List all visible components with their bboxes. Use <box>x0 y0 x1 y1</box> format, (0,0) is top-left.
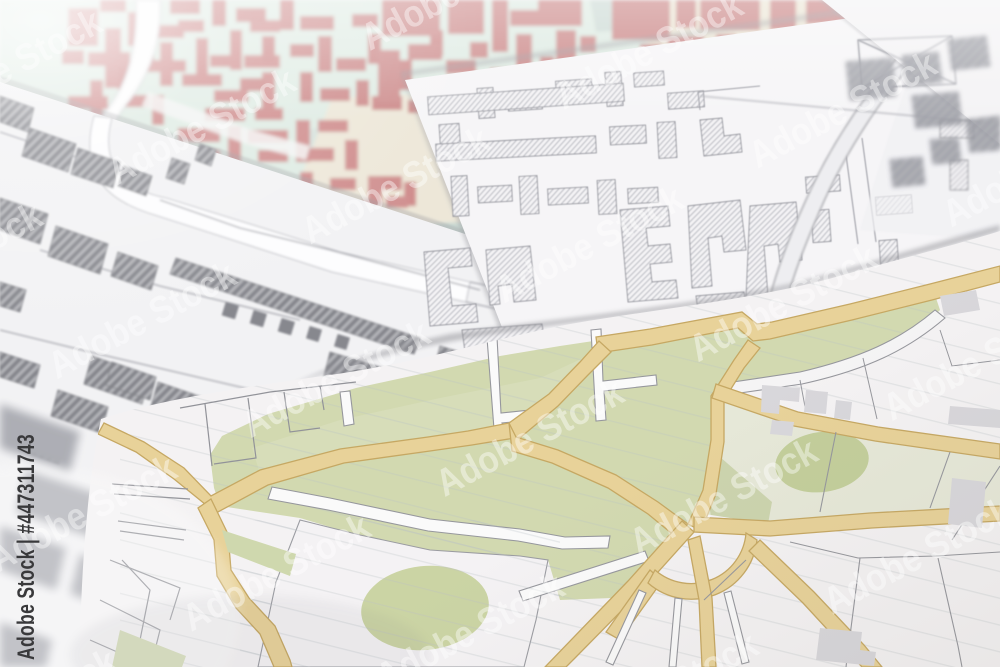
svg-text:Adobe Stock | #447311743: Adobe Stock | #447311743 <box>13 434 40 660</box>
